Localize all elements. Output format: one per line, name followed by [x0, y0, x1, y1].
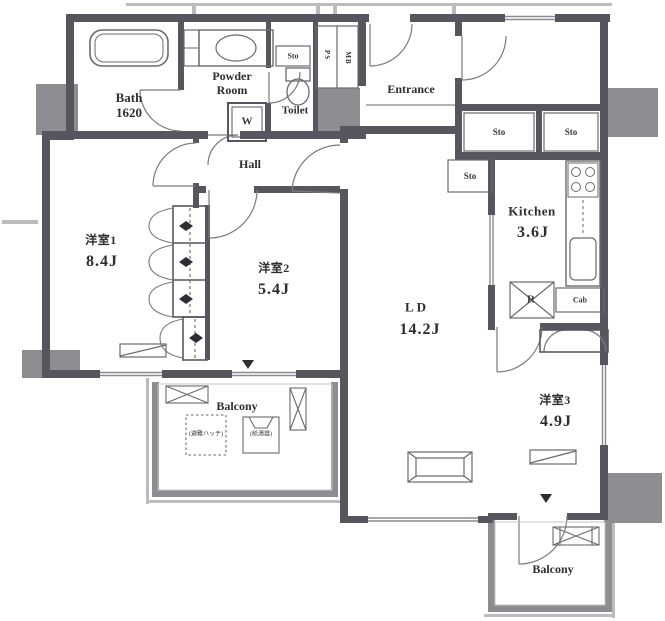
toilet-door-arc	[269, 72, 300, 103]
closet-bifold-arcs	[149, 208, 183, 358]
water-heater-label: (給湯器)	[250, 432, 272, 439]
storage-corridor-2-label: Sto	[565, 127, 578, 137]
bedroom1-size: 8.4J	[86, 253, 118, 271]
wall-bath-west	[66, 14, 74, 135]
hall-label: Hall	[239, 158, 261, 172]
bedroom1-label: 洋室1	[85, 234, 117, 248]
corridor-door-arc	[462, 36, 506, 80]
kitchen-size: 3.6J	[517, 224, 549, 242]
ac-outdoor-unit-south-icon	[290, 388, 306, 430]
closet-column	[149, 206, 207, 360]
powder-door-arc	[208, 135, 238, 165]
wall-bedroom1-west	[42, 132, 50, 378]
ld-table-icon	[408, 452, 472, 482]
bath-size: 1620	[116, 106, 143, 121]
pipe-shaft-label: PS	[323, 50, 331, 60]
wall-east	[600, 22, 608, 520]
bedroom3-label: 洋室3	[539, 394, 571, 408]
floor-plan: Bath 1620 Powder Room Toilet Entrance Ha…	[0, 0, 665, 621]
storage-kitchen-label: Sto	[464, 171, 477, 181]
wall-kitchen-north	[455, 152, 608, 160]
kitchen-counter-icon	[566, 161, 600, 286]
powder-room-label: Powder Room	[197, 70, 267, 98]
storage-corridor-1-label: Sto	[493, 127, 506, 137]
wall-bedrooms-south	[42, 370, 348, 378]
wall-storage-north	[455, 104, 608, 111]
bedroom3-closet	[540, 330, 608, 352]
bath-door-arc	[140, 90, 181, 131]
vanity-sink-icon	[184, 30, 273, 66]
bedroom3-door-arc	[497, 327, 542, 372]
meter-box-label: MB	[344, 51, 352, 64]
storage-toilet-label: Sto	[287, 51, 298, 60]
bedroom1-low-window	[120, 344, 166, 357]
balcony-vent-icon	[166, 386, 208, 403]
refrigerator-label: R	[527, 294, 535, 307]
ld-label: LD	[405, 301, 429, 316]
column-bottom-right	[604, 473, 662, 523]
entrance-door-arc	[370, 24, 412, 66]
balcony-south-label: Balcony	[216, 400, 257, 414]
bedroom1-door-arc	[153, 143, 196, 186]
hall-ld-door-arc	[292, 145, 340, 193]
bath-label: Bath 1620	[116, 91, 143, 121]
kitchen-sink-icon	[570, 238, 596, 280]
balcony-east-label: Balcony	[532, 563, 573, 577]
bedroom2-size: 5.4J	[258, 281, 290, 299]
column-top-right	[608, 88, 658, 137]
bedroom2-label: 洋室2	[258, 262, 290, 276]
ac-outdoor-unit-east-icon	[553, 527, 599, 545]
bath-name: Bath	[116, 91, 143, 106]
washer-label: W	[242, 116, 253, 129]
entrance-label: Entrance	[387, 83, 434, 97]
floorplan-linework	[0, 0, 665, 621]
toilet-label: Toilet	[282, 105, 309, 118]
bedroom2-door-arc	[209, 190, 257, 238]
wall-storage-divider	[536, 104, 542, 160]
bedroom3-size: 4.9J	[540, 413, 572, 431]
bedroom3-closet-door-arcs	[544, 330, 606, 352]
cabinet-label: Cab	[573, 295, 587, 304]
bathtub-icon	[90, 30, 168, 66]
wall-entrance-south	[348, 126, 462, 134]
wall-entrance-west	[358, 22, 366, 86]
evacuation-hatch-label: (避難ハッチ)	[189, 432, 223, 439]
bedroom3-low-window	[530, 450, 576, 464]
kitchen-label: Kitchen	[508, 205, 556, 220]
opening-markers	[242, 360, 552, 503]
ld-size: 14.2J	[400, 321, 441, 339]
